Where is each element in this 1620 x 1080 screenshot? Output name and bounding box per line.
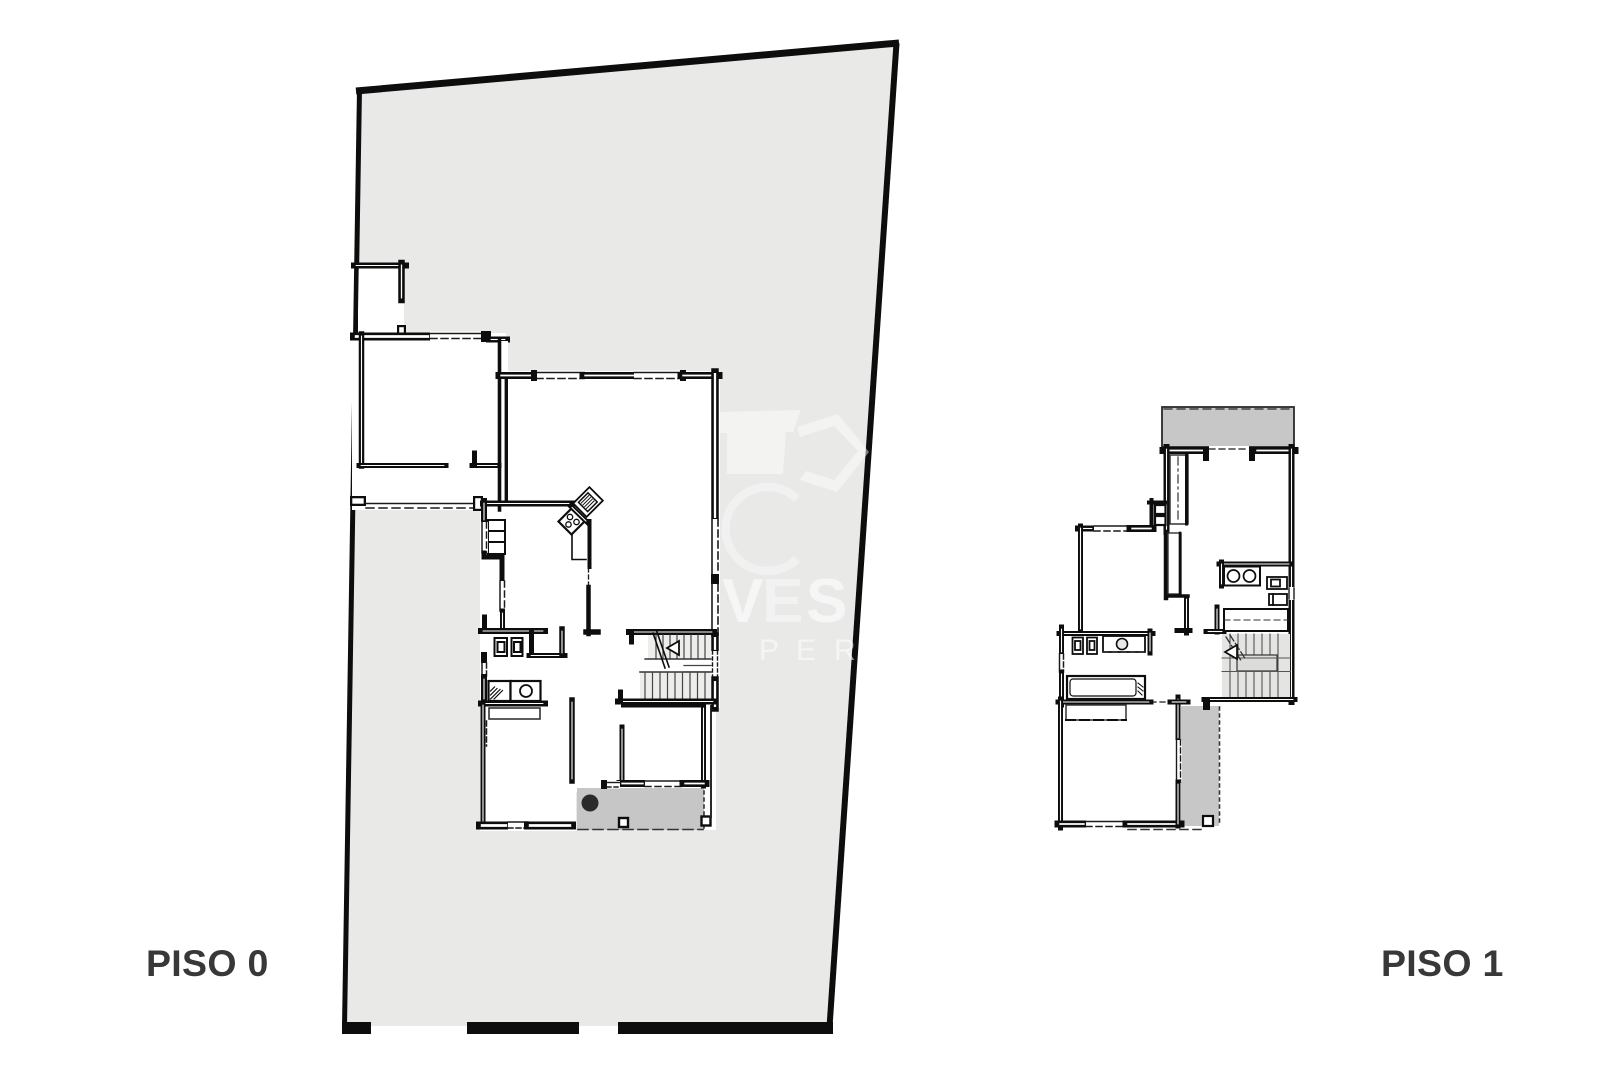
svg-text:E: E [762, 567, 803, 636]
svg-text:V: V [722, 567, 763, 636]
svg-text:P: P [759, 634, 779, 667]
svg-text:E: E [796, 634, 816, 667]
svg-text:PISO 1: PISO 1 [1381, 942, 1504, 984]
svg-text:R: R [834, 634, 856, 667]
svg-text:S: S [806, 567, 847, 636]
svg-text:PISO 0: PISO 0 [146, 942, 269, 984]
